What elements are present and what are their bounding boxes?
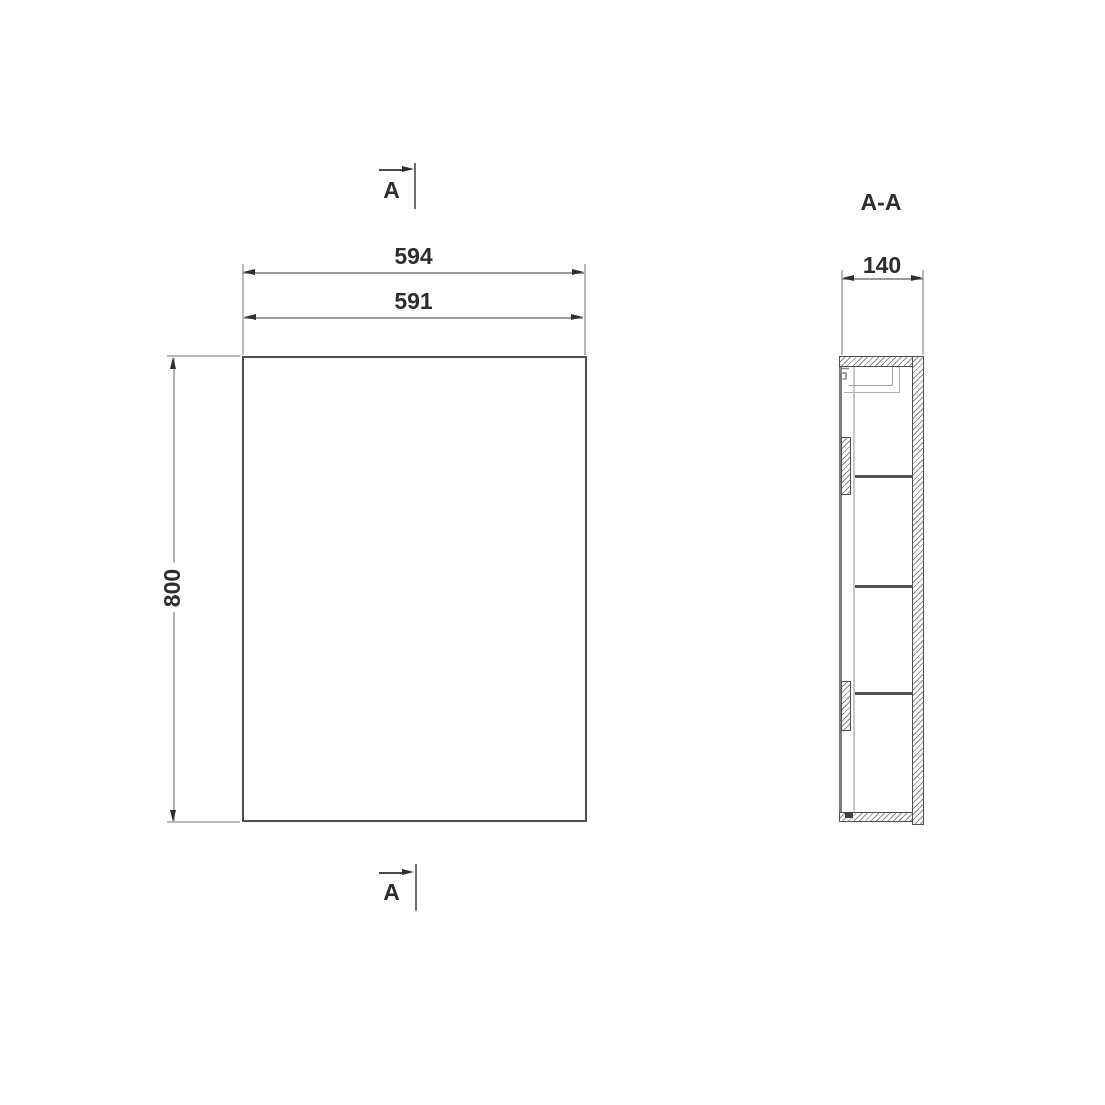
top-panel-section <box>839 356 914 367</box>
door-back-edge <box>853 366 855 813</box>
back-panel-section <box>912 356 924 825</box>
drawing-sheet: 594 591 800 A <box>0 0 1105 1105</box>
door-profile-block <box>841 437 851 495</box>
cut-plane-line <box>415 864 417 911</box>
extension-line <box>167 821 240 823</box>
dim-depth-label: 140 <box>852 252 912 278</box>
mirror-door-section <box>839 357 842 822</box>
dimension-line <box>244 317 583 319</box>
arrow-left-icon <box>244 314 256 320</box>
dimension-line <box>173 612 175 822</box>
arrow-right-icon <box>571 314 583 320</box>
section-cut-label-bottom: A <box>379 879 404 905</box>
shelf <box>855 475 913 478</box>
shelf <box>855 585 913 588</box>
dim-width-inner-label: 591 <box>242 288 585 314</box>
arrow-right-icon <box>911 275 923 281</box>
arrow-down-icon <box>170 810 176 822</box>
dimension-line <box>243 272 584 274</box>
arrow-right-icon <box>572 269 584 275</box>
arrow-right-icon <box>402 166 414 172</box>
cut-plane-line <box>414 163 416 209</box>
dim-height-label: 800 <box>159 557 185 619</box>
section-view-title: A-A <box>846 189 916 215</box>
extension-line <box>922 270 924 355</box>
extension-line <box>841 270 843 355</box>
section-cut-label-top: A <box>379 177 404 203</box>
door-profile-block <box>841 681 851 731</box>
arrow-right-icon <box>402 869 414 875</box>
dimension-line <box>173 358 175 563</box>
extension-line <box>167 355 240 357</box>
cabinet-front-outline <box>242 356 587 822</box>
arrow-up-icon <box>170 357 176 369</box>
door-bottom-clip <box>845 812 853 818</box>
shelf <box>855 692 913 695</box>
hinge-detail-inner <box>849 366 893 386</box>
dim-width-outer-label: 594 <box>242 243 585 269</box>
hinge-clip-icon <box>839 367 851 381</box>
arrow-left-icon <box>243 269 255 275</box>
